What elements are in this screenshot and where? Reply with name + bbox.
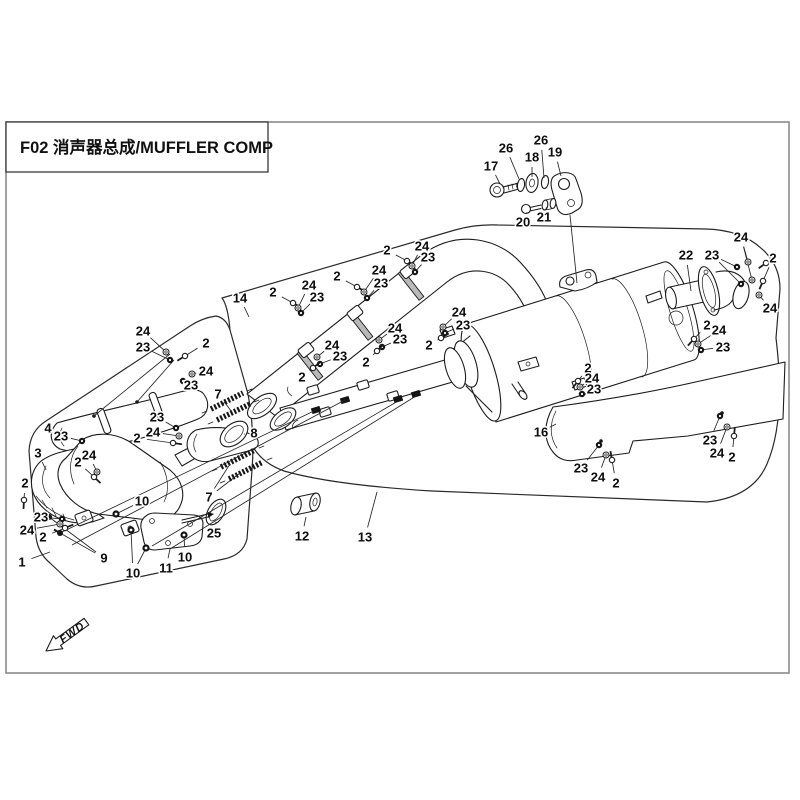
- part-bushing-12: [289, 492, 322, 516]
- part-callout-23: 23: [333, 349, 347, 364]
- parts-catalog-page: F02 消声器总成/MUFFLER COMP: [0, 0, 800, 800]
- bolt-17-head: [490, 183, 504, 197]
- part-callout-23: 23: [421, 250, 435, 265]
- part-callout-2: 2: [383, 243, 390, 258]
- part-callout-2: 2: [362, 355, 369, 370]
- part-callout-4: 4: [44, 421, 52, 436]
- part-callout-17: 17: [484, 159, 498, 174]
- part-callout-1: 1: [18, 555, 25, 570]
- part-callout-23: 23: [393, 332, 407, 347]
- part-callout-2: 2: [39, 530, 46, 545]
- part-callout-20: 20: [516, 215, 530, 230]
- part-callout-2: 2: [74, 455, 81, 470]
- part-callout-2: 2: [425, 338, 432, 353]
- part-callout-23: 23: [34, 510, 48, 525]
- part-callout-2: 2: [703, 318, 710, 333]
- part-callout-24: 24: [734, 230, 749, 245]
- page-title: F02 消声器总成/MUFFLER COMP: [20, 137, 273, 157]
- part-callout-26: 26: [534, 133, 548, 148]
- part-callout-18: 18: [525, 150, 539, 165]
- fwd-arrow: FWD: [41, 615, 91, 657]
- part-callout-23: 23: [716, 340, 730, 355]
- part-callout-23: 23: [456, 318, 470, 333]
- fwd-label: FWD: [58, 620, 88, 646]
- part-callout-23: 23: [587, 382, 601, 397]
- part-callout-19: 19: [548, 145, 562, 160]
- part-callout-23: 23: [374, 276, 388, 291]
- part-callout-22: 22: [679, 248, 693, 263]
- part-callout-23: 23: [54, 429, 68, 444]
- part-callout-8: 8: [250, 426, 257, 441]
- part-callout-24: 24: [712, 323, 727, 338]
- part-callout-11: 11: [159, 561, 173, 576]
- part-callout-2: 2: [612, 476, 619, 491]
- part-callout-2: 2: [21, 476, 28, 491]
- part-callout-24: 24: [146, 425, 161, 440]
- part-callout-24: 24: [82, 448, 97, 463]
- part-callout-2: 2: [269, 285, 276, 300]
- part-callout-24: 24: [591, 470, 606, 485]
- part-callout-16: 16: [534, 425, 548, 440]
- part-callout-25: 25: [207, 526, 221, 541]
- part-callout-24: 24: [199, 364, 214, 379]
- part-callout-14: 14: [233, 291, 248, 306]
- part-callout-24: 24: [136, 324, 151, 339]
- part-callout-13: 13: [358, 530, 372, 545]
- part-callout-2: 2: [133, 431, 140, 446]
- title-block: F02 消声器总成/MUFFLER COMP: [6, 122, 273, 172]
- part-callout-26: 26: [499, 141, 513, 156]
- part-callout-23: 23: [184, 378, 198, 393]
- part-callout-7: 7: [205, 490, 212, 505]
- part-callout-23: 23: [705, 248, 719, 263]
- part-callout-12: 12: [295, 529, 309, 544]
- part-callout-24: 24: [763, 301, 778, 316]
- part-callout-24: 24: [710, 446, 725, 461]
- part-callout-23: 23: [310, 290, 324, 305]
- part-callout-23: 23: [150, 410, 164, 425]
- exploded-parts-diagram: F02 消声器总成/MUFFLER COMP: [0, 0, 800, 800]
- part-callout-21: 21: [537, 210, 551, 225]
- bolt-20-head: [522, 205, 531, 214]
- part-callout-10: 10: [178, 550, 192, 565]
- part-callout-7: 7: [214, 387, 221, 402]
- part-callout-3: 3: [34, 446, 41, 461]
- part-callout-2: 2: [298, 370, 305, 385]
- part-callout-2: 2: [202, 336, 209, 351]
- part-callout-2: 2: [769, 251, 776, 266]
- part-callout-2: 2: [728, 450, 735, 465]
- part-callout-23: 23: [574, 461, 588, 476]
- part-callout-23: 23: [136, 340, 150, 355]
- part-callout-24: 24: [20, 523, 35, 538]
- part-callout-10: 10: [135, 494, 149, 509]
- part-callout-9: 9: [100, 551, 107, 566]
- part-callout-2: 2: [333, 269, 340, 284]
- part-callout-10: 10: [126, 566, 140, 581]
